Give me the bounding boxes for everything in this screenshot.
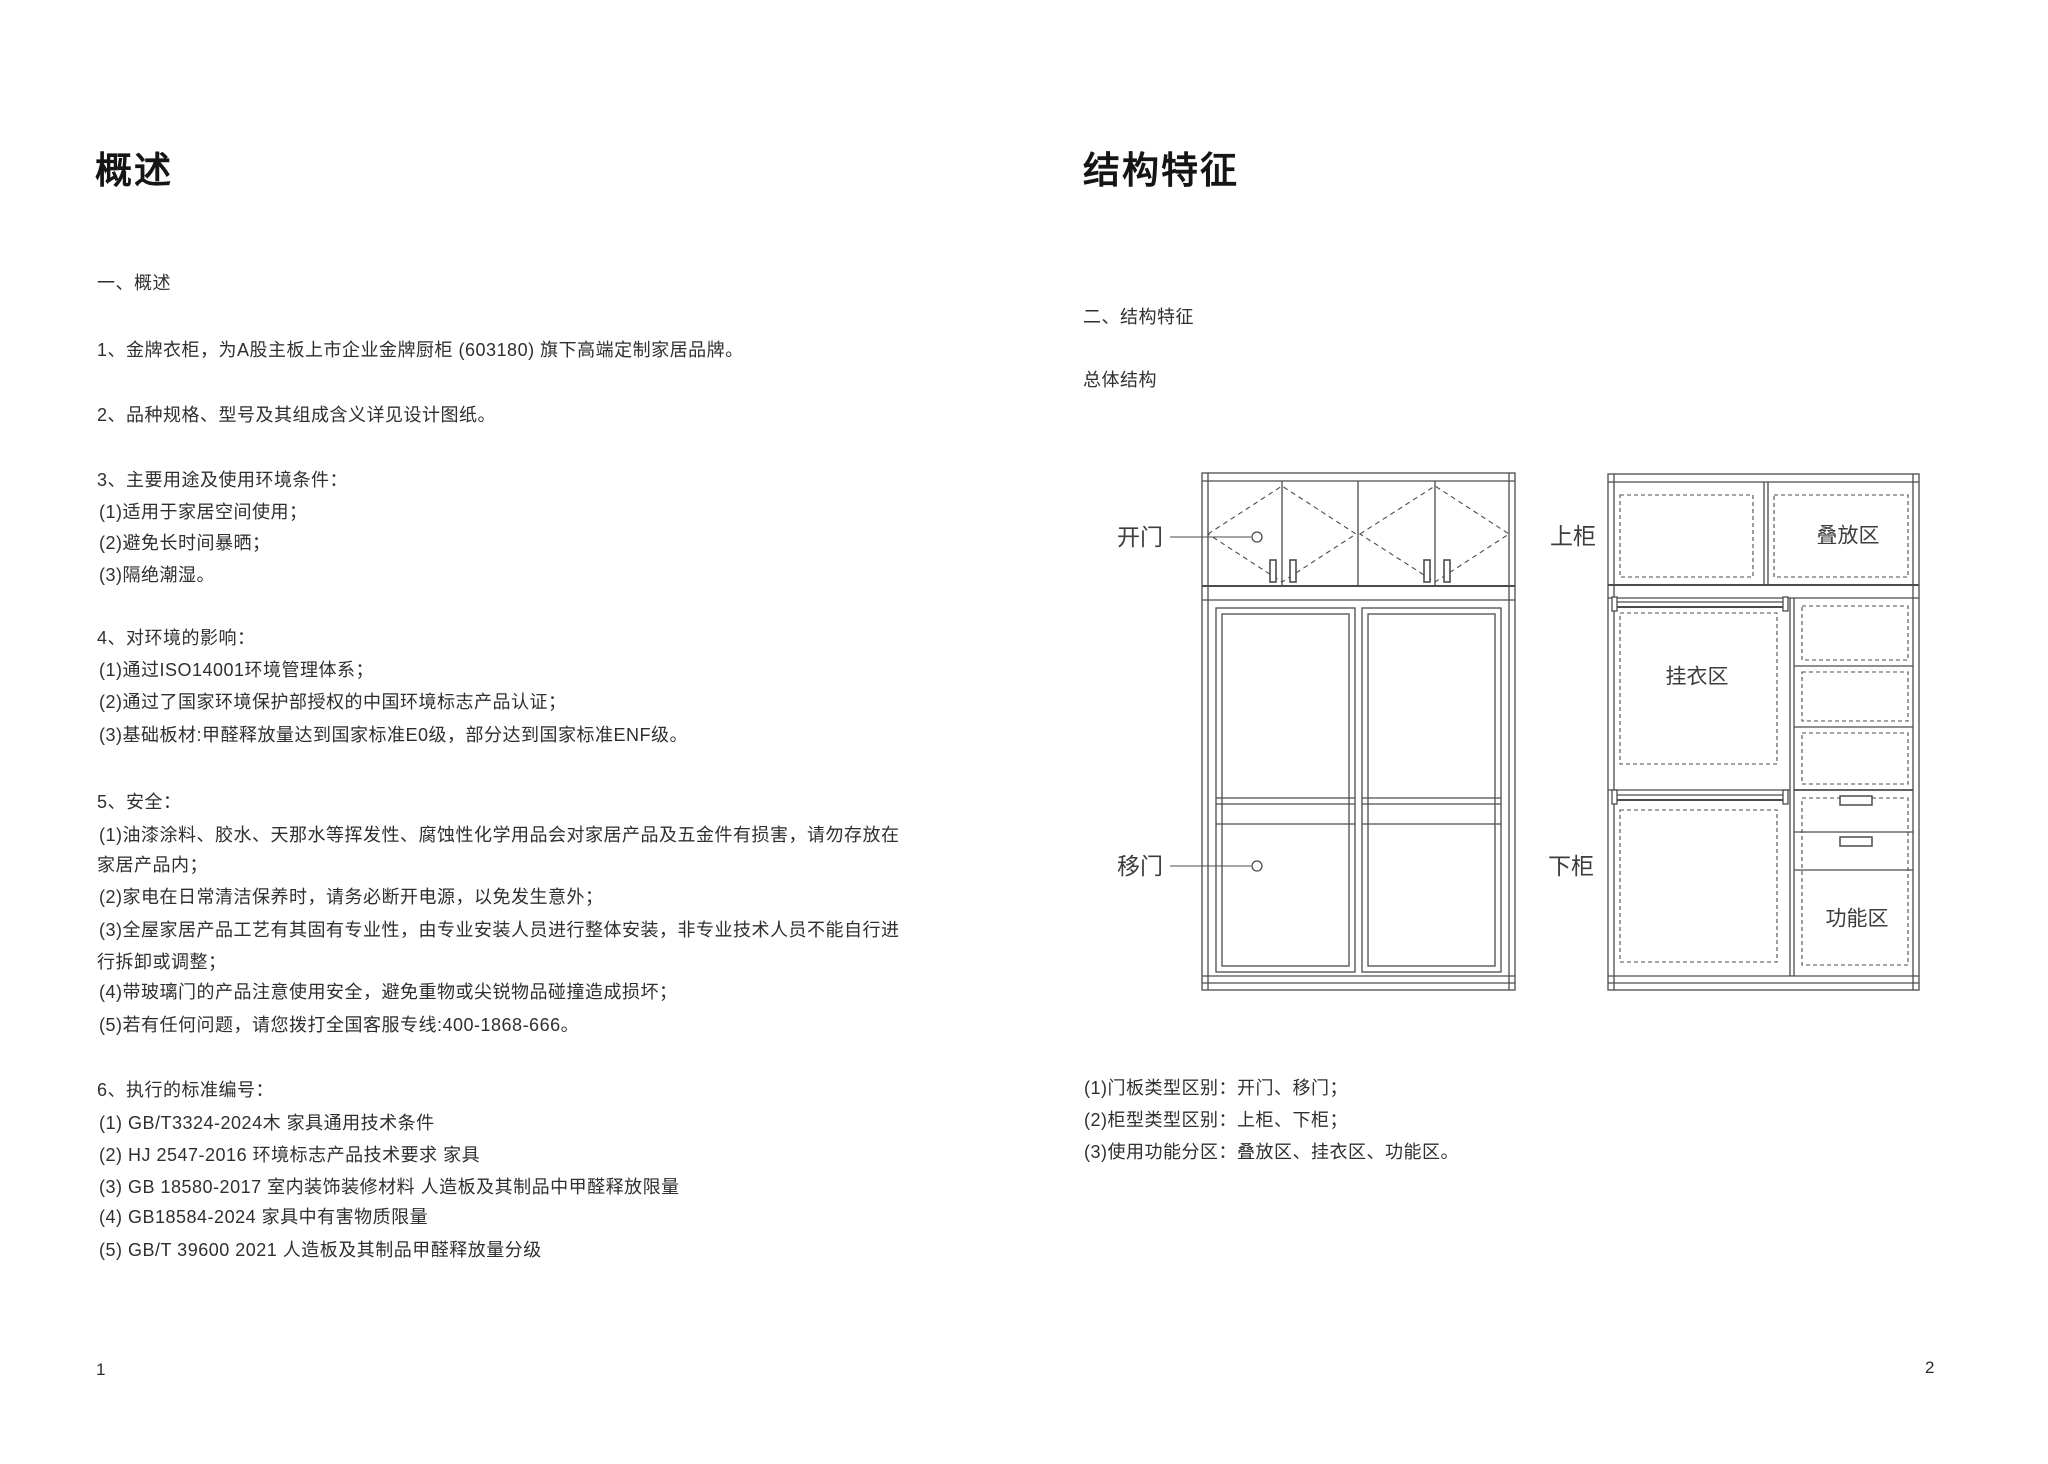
body-line: (2)家电在日常清洁保养时，请务必断开电源，以免发生意外； [99,881,604,913]
note-line: (1)门板类型区别：开门、移门； [1084,1072,1348,1104]
wardrobe-front-diagram [1170,473,1515,990]
body-line: (2)通过了国家环境保护部授权的中国环境标志产品认证； [99,686,567,718]
note-line: (3)使用功能分区：叠放区、挂衣区、功能区。 [1084,1136,1459,1168]
body-line: 家居产品内； [97,849,208,881]
body-line: (3)隔绝潮湿。 [99,559,215,591]
wardrobe-diagram-svg: 开门 移门 上柜 下柜 叠放区 挂衣区 功能区 [1100,460,1960,1010]
body-line: 6、执行的标准编号： [97,1074,274,1106]
open-door-leader [1170,532,1262,542]
body-line: 4、对环境的影响： [97,622,256,654]
body-line: (4)带玻璃门的产品注意使用安全，避免重物或尖锐物品碰撞造成损坏； [99,976,678,1008]
body-line: 一、概述 [97,267,171,299]
body-line: (2)避免长时间暴晒； [99,527,271,559]
label-function-zone: 功能区 [1826,908,1889,931]
drawer-handles [1840,796,1872,846]
page-title-structure: 结构特征 [1083,140,1239,194]
body-line: 1、金牌衣柜，为A股主板上市企业金牌厨柜 (603180) 旗下高端定制家居品牌… [97,334,744,366]
hanging-zone-mark [1620,613,1777,764]
label-sliding-door: 移门 [1117,853,1163,879]
note-line: (2)柜型类型区别：上柜、下柜； [1084,1104,1348,1136]
hanging-rod-bottom [1612,790,1788,804]
hanging-rod-top [1612,597,1788,611]
function-zone-mark [1802,798,1908,965]
sliding-door-right [1362,608,1501,972]
sliding-door-left [1216,608,1355,972]
manual-spread: { "page_left": { "title": "概述", "page_nu… [0,0,2048,1464]
body-line: (5) GB/T 39600 2021 人造板及其制品甲醛释放量分级 [99,1234,542,1266]
body-line: (3)全屋家居产品工艺有其固有专业性，由专业安装人员进行整体安装，非专业技术人员… [99,914,900,946]
wardrobe-diagrams: 开门 移门 上柜 下柜 叠放区 挂衣区 功能区 [1100,460,1960,1010]
label-stack-zone: 叠放区 [1817,525,1880,548]
body-line: 2、品种规格、型号及其组成含义详见设计图纸。 [97,399,496,431]
body-line: 行拆卸或调整； [97,946,227,978]
body-line: 3、主要用途及使用环境条件： [97,464,348,496]
page-number-left: 1 [96,1360,105,1380]
sub-heading: 总体结构 [1083,364,1157,396]
door-handles [1270,560,1450,582]
section-heading: 二、结构特征 [1083,301,1194,333]
body-line: (2) HJ 2547-2016 环境标志产品技术要求 家具 [99,1139,480,1171]
body-line: (1)适用于家居空间使用； [99,496,308,528]
page-number-right: 2 [1925,1358,1934,1378]
page-title-overview: 概述 [95,140,173,194]
label-hanging-zone: 挂衣区 [1666,666,1729,689]
label-lower-cabinet: 下柜 [1548,853,1594,879]
body-line: (1)通过ISO14001环境管理体系； [99,654,374,686]
shelf-marks [1802,606,1908,784]
body-line: (4) GB18584-2024 家具中有害物质限量 [99,1201,428,1233]
body-line: (3) GB 18580-2017 室内装饰装修材料 人造板及其制品中甲醛释放限… [99,1171,680,1203]
label-open-door: 开门 [1117,524,1163,550]
body-line: (3)基础板材:甲醛释放量达到国家标准E0级，部分达到国家标准ENF级。 [99,719,688,751]
body-line: (5)若有任何问题，请您拨打全国客服专线:400-1868-666。 [99,1009,579,1041]
label-upper-cabinet: 上柜 [1550,523,1596,549]
body-line: 5、安全： [97,786,182,818]
lower-hanging-mark [1620,810,1777,962]
body-line: (1)油漆涂料、胶水、天那水等挥发性、腐蚀性化学用品会对家居产品及五金件有损害，… [99,819,900,851]
body-line: (1) GB/T3324-2024木 家具通用技术条件 [99,1107,435,1139]
